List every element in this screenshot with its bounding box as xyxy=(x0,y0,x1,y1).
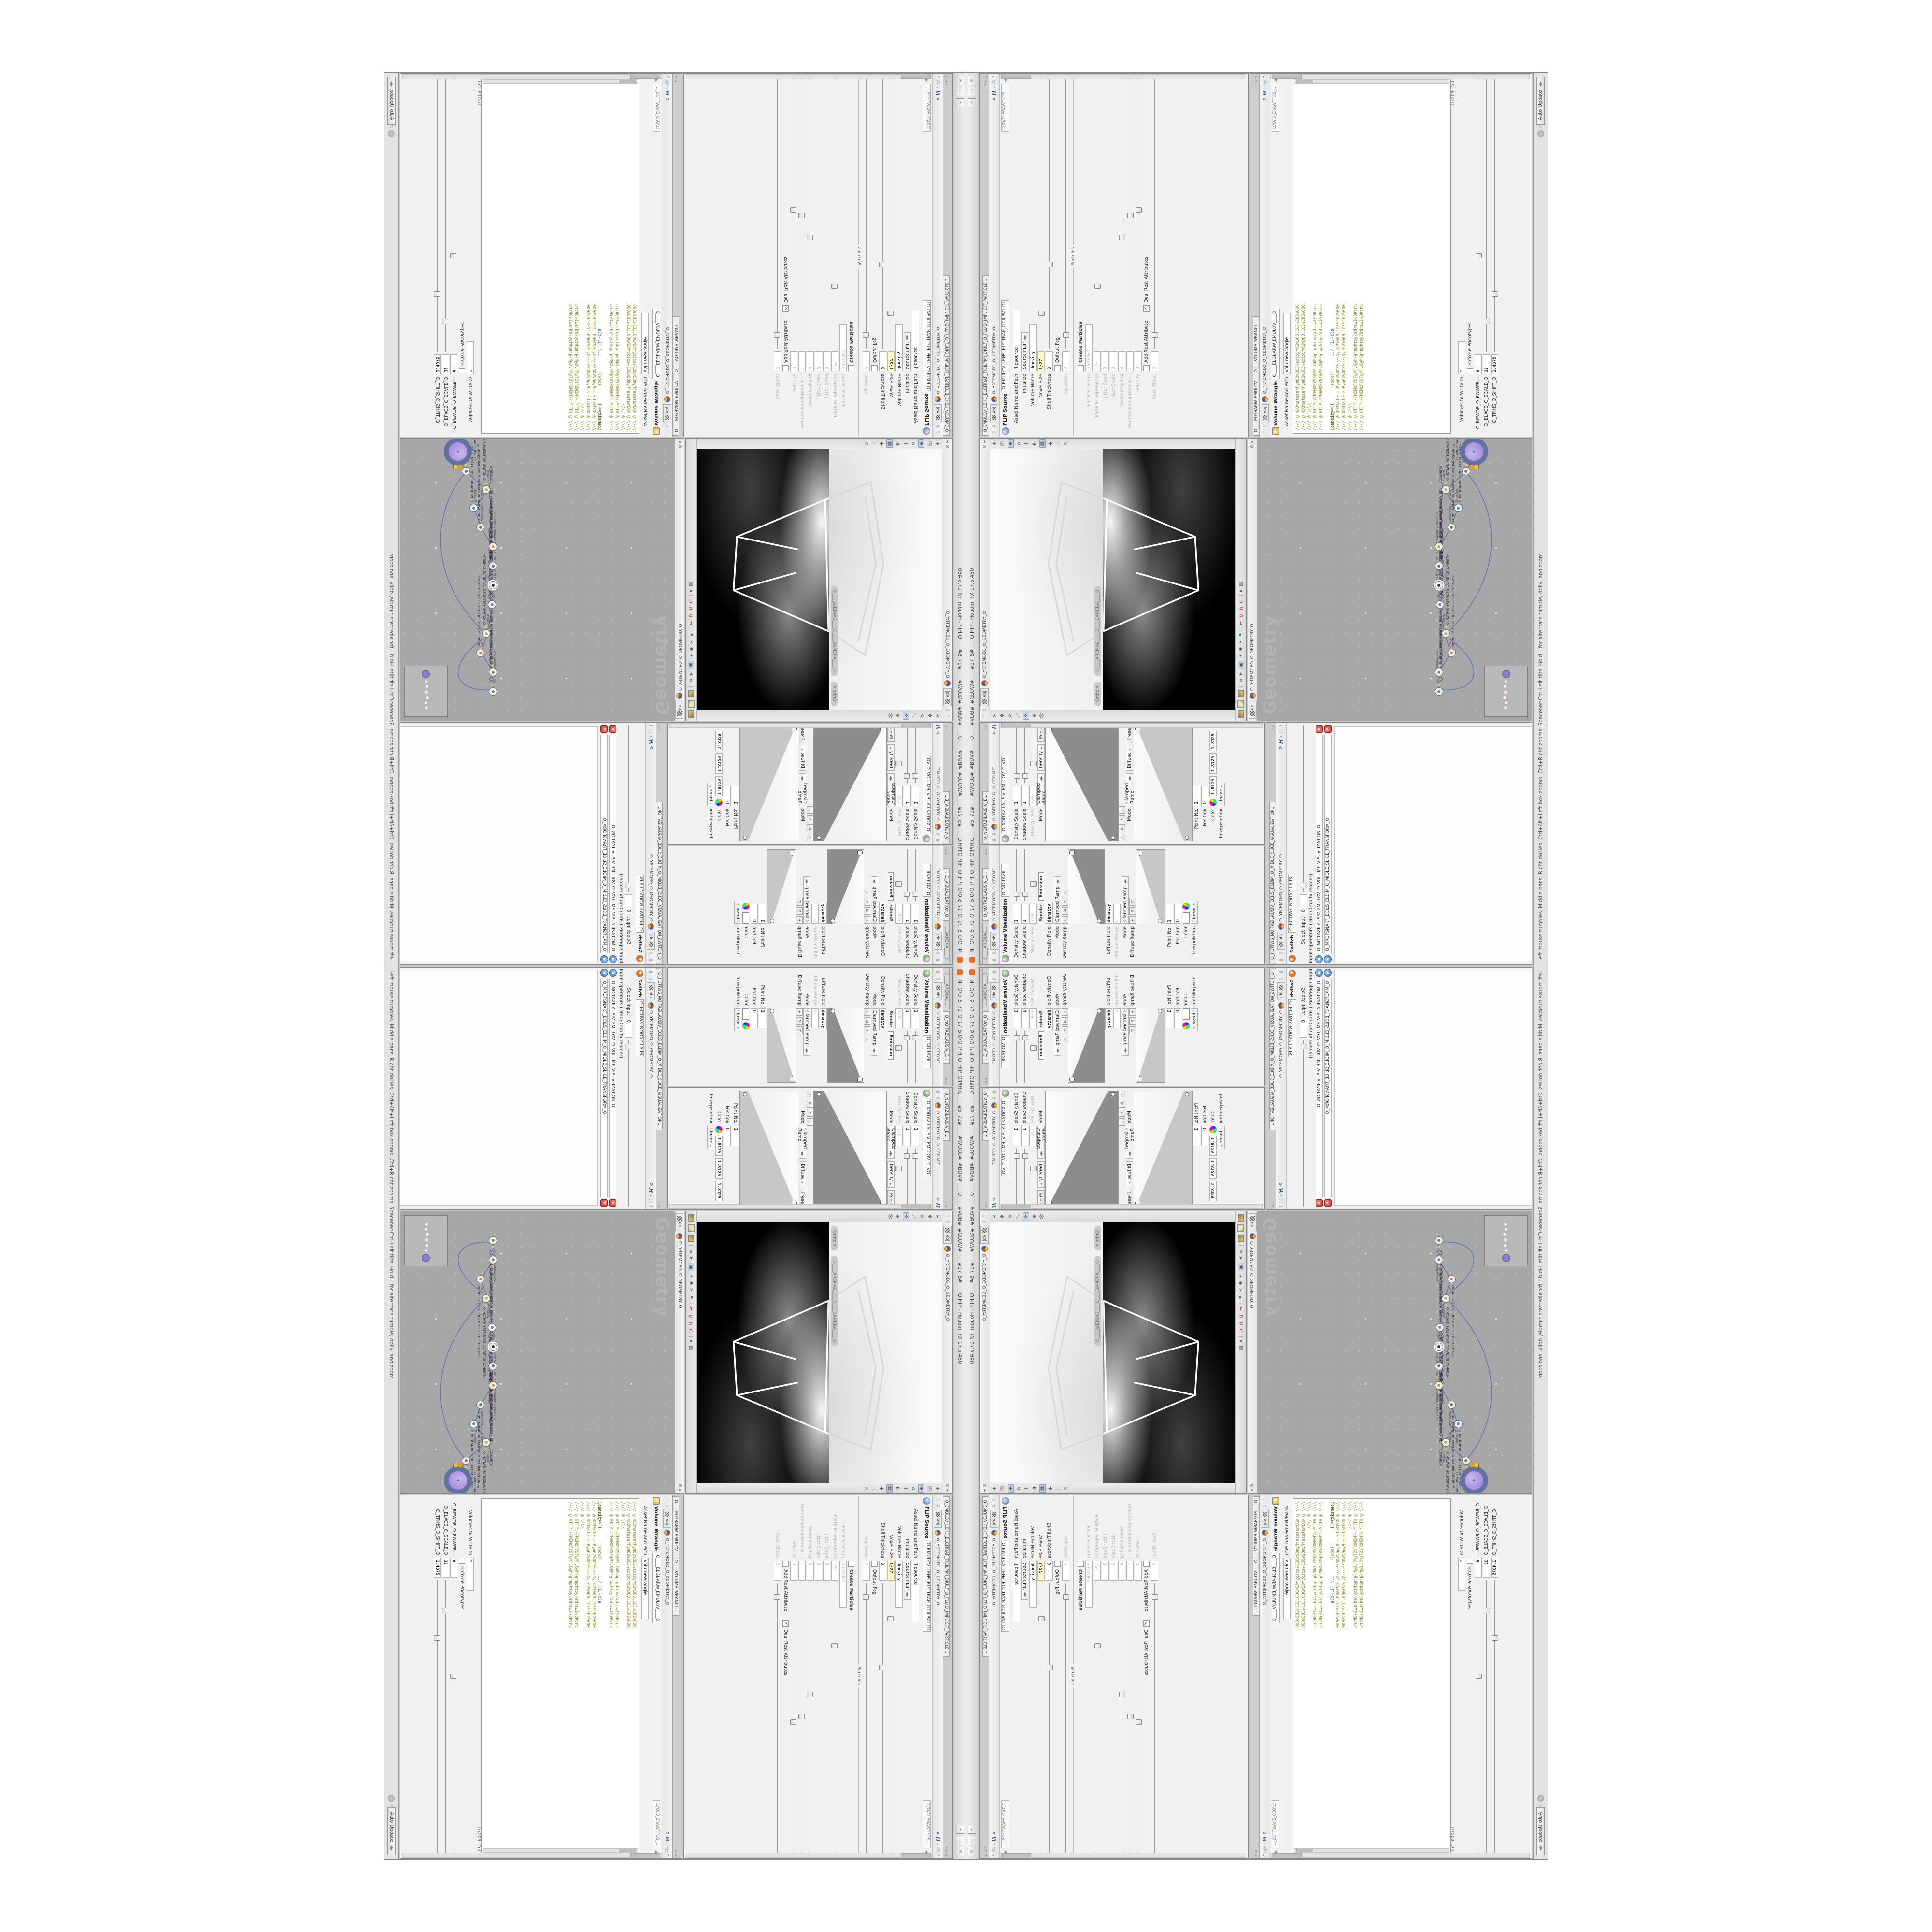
density-mode-menu[interactable]: Clamped Ramp◀▶ xyxy=(1054,876,1061,924)
ramp-handle[interactable] xyxy=(831,919,835,923)
edges-mode-icon[interactable]: ✶ xyxy=(689,1274,694,1278)
diffuse-field[interactable]: density xyxy=(1105,902,1112,924)
help-icon[interactable]: ? xyxy=(1279,724,1284,727)
diffuse-ramp-editor[interactable] xyxy=(739,725,798,841)
update-mode-icon[interactable]: ⟳ xyxy=(389,1804,394,1808)
breadcrumb[interactable]: O_YRTEMOEG_O_GEOMETRY_O xyxy=(665,1538,670,1605)
interpolation-menu[interactable]: Linear▾ xyxy=(1191,1008,1198,1031)
shading-mode-icon[interactable] xyxy=(1238,690,1244,697)
enforce-prototypes-checkbox[interactable] xyxy=(459,368,465,374)
tab-camera[interactable]: O____AREMAC____O... xyxy=(943,922,950,963)
shift-slider[interactable] xyxy=(434,1580,440,1855)
color-wheel-icon[interactable] xyxy=(715,1126,723,1133)
pane-corner-icons[interactable]: ▹ ▫ xyxy=(943,1078,949,1085)
magnifier-icon[interactable]: ⌕ xyxy=(665,86,670,89)
snap-prim-magnet-icon[interactable]: ⊂ xyxy=(1238,1329,1244,1333)
position-field[interactable]: 0 xyxy=(751,904,758,924)
network-canvas[interactable]: Geometry an_CubeSphereO_EREHPS_EBUC_O_CU… xyxy=(400,439,675,721)
asset-name-field[interactable]: flipsource xyxy=(1013,1561,1020,1622)
point-no-field[interactable]: 1 xyxy=(1166,1008,1173,1028)
snap-tool-icon[interactable]: ◈ xyxy=(895,1215,900,1219)
shell-thickness-field[interactable]: 3 xyxy=(1046,351,1053,371)
diffuse-range-field[interactable]: 0 xyxy=(811,1008,819,1028)
rest-offset-field[interactable]: 0 xyxy=(1151,1561,1158,1581)
gear-icon[interactable]: ⚙ xyxy=(936,1831,940,1835)
points-icon[interactable]: ∴ xyxy=(871,442,876,445)
magnifier-icon[interactable]: ⌕ xyxy=(1263,1843,1267,1846)
ramp-add-button[interactable]: + xyxy=(1062,916,1068,924)
fog-boost-field[interactable]: 0 xyxy=(1062,1561,1069,1581)
shading-mode-icon[interactable] xyxy=(1238,1214,1244,1222)
obj-context-chip[interactable]: obj xyxy=(934,404,942,422)
handles-tool-icon[interactable]: ✛ xyxy=(1023,711,1029,720)
interpolation-menu[interactable]: Linear▾ xyxy=(734,901,741,924)
oversampling-slider[interactable] xyxy=(807,1583,813,1855)
color-wheel-icon[interactable] xyxy=(715,799,723,806)
minimize-button[interactable]: – xyxy=(956,98,964,107)
scale-slider[interactable] xyxy=(442,1580,449,1855)
ortho-pill[interactable]: Ortho ▾ xyxy=(831,682,838,706)
tab-volume-visualization[interactable]: O_NOITAZILAUSIV_E... xyxy=(982,1089,989,1141)
remove-operator-icon[interactable]: ✕ xyxy=(1316,1199,1323,1207)
asset-name-field[interactable]: flipsource xyxy=(912,1561,919,1622)
snap-point-magnet-icon[interactable]: ∪ xyxy=(1238,1314,1244,1319)
normals-icon[interactable]: ⊼ xyxy=(863,442,868,445)
ramp-handle[interactable] xyxy=(817,1092,821,1096)
ramp-handle[interactable] xyxy=(1158,1009,1162,1013)
diffuse-ramp-editor[interactable] xyxy=(767,1008,796,1083)
help-icon[interactable]: ? xyxy=(665,1854,670,1856)
pane-scrollbar[interactable] xyxy=(1270,74,1530,79)
breadcrumb[interactable]: O_YRTEMOEG_O_GEOMETRY_O xyxy=(982,611,987,678)
info-icon[interactable]: ⓘ xyxy=(664,1847,670,1852)
ramp-handle[interactable] xyxy=(1111,836,1115,840)
pane-tabbar[interactable]: O_HCTIWS_NOITAZILAUSIV_ECILS_ELDIM_O_MID… xyxy=(656,968,666,1209)
ramp-flip-button[interactable]: ▽ xyxy=(796,1026,803,1034)
output-fog-checkbox[interactable] xyxy=(871,365,878,371)
nav-down-icon[interactable]: ⇩ xyxy=(649,952,653,956)
color-swatch[interactable] xyxy=(1183,1008,1190,1020)
snap-point-magnet-icon[interactable]: ∪ xyxy=(688,1314,695,1319)
gear-icon[interactable]: ⚙ xyxy=(992,731,997,735)
info-icon[interactable]: ⓘ xyxy=(648,1199,654,1203)
help-icon[interactable]: ? xyxy=(1263,76,1267,78)
reorder-icon[interactable]: ◀ xyxy=(1324,955,1332,963)
obj-context-chip[interactable]: obj xyxy=(980,1226,989,1244)
camera-view-icon[interactable]: ◉ xyxy=(1008,440,1014,448)
density-mode-menu[interactable]: Clamped Ramp◀▶ xyxy=(887,1126,895,1159)
camera-view-icon[interactable]: ◉ xyxy=(1008,1484,1014,1493)
diffuse-mode-menu[interactable]: Clamped Ramp◀▶ xyxy=(1126,773,1133,806)
input-operator-row[interactable]: ◀ O_MROFSNART_ECILS_ELDIM_O_MIDLE_SLICE_… xyxy=(600,969,609,1207)
density-scale-field[interactable]: 1 xyxy=(912,786,919,806)
select-input-field[interactable]: 0 xyxy=(625,894,632,914)
particle-separation-slider[interactable] xyxy=(832,1583,838,1855)
breadcrumb[interactable]: O_YRTEMOEG_O_GEOMETRY_O xyxy=(1279,854,1284,922)
shadow-scale-field[interactable]: 1 xyxy=(904,786,911,806)
info-icon[interactable]: ⓘ xyxy=(1278,1199,1284,1203)
pane-tabbar[interactable]: O____ELGNARW_EMULOV____O____VOLUME_WRANG… xyxy=(672,1495,682,1858)
shading-mode-icon[interactable] xyxy=(688,1214,694,1222)
close-button[interactable]: ✕ xyxy=(968,76,976,85)
nav-down-icon[interactable]: ⇩ xyxy=(936,832,940,836)
move-tool-icon[interactable]: ✥ xyxy=(927,1214,932,1218)
viewport-canvas[interactable]: Ortho ▾ O____AREMAC____O____CAMERA____O xyxy=(990,1222,1235,1483)
obj-context-chip[interactable]: obj xyxy=(1277,982,1285,1000)
pane-menu-icon[interactable]: ▸ xyxy=(982,1489,987,1492)
ramp-delete-button[interactable]: ✕ xyxy=(1062,898,1068,906)
ramp-grid-button[interactable]: ⊞ xyxy=(807,1100,813,1108)
interpolation-menu[interactable]: Linear▾ xyxy=(1218,783,1225,806)
node-name-field[interactable]: O_EMULOV_LEHS_ELCITRAP_TICILPMI_DI xyxy=(923,300,931,392)
power-field[interactable]: 6 xyxy=(450,1558,457,1578)
tab-switch[interactable]: O_HCTIWS_NOITAZILAUSIV_ECILS_ELDIM_O_MID… xyxy=(1269,969,1276,1130)
select-input-field[interactable]: 0 xyxy=(1300,1018,1307,1038)
node-name-field[interactable]: O_HCTIWS_NOITAZILAUS xyxy=(1288,999,1296,1057)
snap-prim-magnet-icon[interactable]: ⊂ xyxy=(1238,599,1244,603)
frame-view-icon[interactable]: ⌂ xyxy=(910,1487,916,1490)
rest-offset-slider[interactable] xyxy=(1151,1583,1158,1855)
vector-icon[interactable]: ⚑ xyxy=(689,633,694,637)
ramp-delete-button[interactable]: ✕ xyxy=(807,815,813,823)
minimize-button[interactable]: – xyxy=(968,98,976,107)
nav-down-icon[interactable]: ⇩ xyxy=(936,1096,940,1100)
diffuse-field[interactable]: density xyxy=(820,902,827,924)
tab-volume-visualization[interactable]: O_NOITAZILAUSIV_E... xyxy=(982,1011,989,1064)
ramp-add-button[interactable]: + xyxy=(807,1091,813,1098)
ramp-handle[interactable] xyxy=(770,1009,774,1013)
asset-name-field[interactable]: volumewrangle xyxy=(641,313,649,374)
node-name-field[interactable]: O____ELGNARW_EMULOV____O xyxy=(1272,1553,1280,1623)
wire-icon[interactable]: ✚ xyxy=(1048,441,1053,445)
obj-context-chip[interactable]: obj xyxy=(934,1510,942,1528)
ramp-add-button[interactable]: + xyxy=(807,834,813,841)
shade-icon[interactable]: ◐ xyxy=(895,441,900,446)
oversampling-bandwidth-slider[interactable] xyxy=(1127,77,1133,349)
output-fog-checkbox[interactable] xyxy=(1054,1561,1061,1567)
fog-boost-slider[interactable] xyxy=(1063,77,1069,349)
nav-up-icon[interactable]: ⇧ xyxy=(982,714,987,719)
volumes-to-write-field[interactable]: * xyxy=(467,1558,474,1591)
position-field[interactable]: 0 xyxy=(724,786,731,806)
ramp-flip-button[interactable]: △ xyxy=(807,806,813,814)
add-rest-checkbox[interactable] xyxy=(782,365,789,371)
vector-icon[interactable]: ⚑ xyxy=(689,1295,694,1299)
velocity-field[interactable]: 0 xyxy=(1135,1561,1142,1581)
density-scale-slider[interactable] xyxy=(1013,1149,1020,1207)
ramp-add-button[interactable]: + xyxy=(1119,1091,1125,1098)
node-name-field[interactable]: O_NOITAZIL... xyxy=(1001,1035,1009,1068)
update-mode-icon[interactable]: ⟳ xyxy=(1538,125,1543,128)
hda-path-field[interactable]: C:/O/O_ERAWTFOS_... xyxy=(1272,84,1279,131)
ramp-grid-button[interactable]: ⊞ xyxy=(864,907,871,915)
pane-corner-icons[interactable]: ▹ ▫ xyxy=(673,75,678,82)
asset-name-field[interactable]: flipsource xyxy=(1013,310,1020,371)
ramp-handle[interactable] xyxy=(743,1092,747,1096)
pane-scrollbar[interactable] xyxy=(669,723,932,728)
pane-corner-icons[interactable]: ▹ ▫ xyxy=(943,724,949,730)
velocity-slider[interactable] xyxy=(791,1583,797,1855)
dual-rest-checkbox[interactable]: ✓ xyxy=(782,305,789,312)
nav-up-icon[interactable]: ⇧ xyxy=(665,1497,670,1502)
obj-context-chip[interactable]: obj xyxy=(934,982,942,1000)
nav-up-icon[interactable]: ⇧ xyxy=(936,838,940,842)
snap-grid-magnet-icon[interactable]: ⌐ xyxy=(1238,1307,1244,1311)
initialize-menu[interactable]: Source FLIP◀▶ xyxy=(904,1561,911,1600)
ramp-add-button[interactable]: + xyxy=(796,916,803,924)
obj-context-chip[interactable]: obj xyxy=(990,932,998,950)
ramp-flip-button[interactable]: △ xyxy=(864,1036,871,1043)
point-no-field[interactable]: 1 xyxy=(1193,1126,1200,1146)
vex-snippet-editor[interactable]: //// @ 0D3%steserPym62%0D3%eziSym62%000.… xyxy=(481,1498,639,1854)
color-wheel-icon[interactable] xyxy=(1209,1126,1217,1133)
density-scale-field[interactable]: 1 xyxy=(1013,1008,1020,1028)
obj-context-chip[interactable]: obj xyxy=(663,1510,671,1528)
interpolation-menu[interactable]: Linear▾ xyxy=(1191,901,1198,924)
pane-menu-icon[interactable]: ▸ xyxy=(1250,1489,1255,1492)
reorder-icon[interactable]: ◀ xyxy=(1315,969,1323,977)
ramp-add-button[interactable]: + xyxy=(864,916,871,924)
ramp-handle[interactable] xyxy=(743,836,747,840)
persp-view-icon[interactable]: ◰ xyxy=(927,1486,932,1491)
rotate-tool-icon[interactable]: ⟳ xyxy=(919,713,924,717)
nav-down-icon[interactable]: ⇩ xyxy=(992,832,997,836)
pane-tabbar[interactable]: O_NOITAZILAUSIV_E... ▹ ▫ xyxy=(980,1088,989,1209)
voxel-size-field[interactable]: 1/27 xyxy=(1037,1561,1045,1581)
node-name-field[interactable]: O_NOITAZIL... xyxy=(923,1035,931,1068)
color-wheel-icon[interactable] xyxy=(742,1022,750,1029)
shift-field[interactable]: 1.4375 xyxy=(434,354,441,374)
pane-corner-icons[interactable]: ▹ ▫ xyxy=(983,724,989,730)
magnifier-icon[interactable]: ⌕ xyxy=(1263,86,1267,89)
shadow-scale-slider[interactable] xyxy=(1022,1031,1028,1083)
diffuse-field[interactable]: density xyxy=(1105,1008,1112,1030)
oversampling-slider[interactable] xyxy=(1119,77,1125,349)
jitter-scale-field[interactable]: 0 xyxy=(815,1561,822,1581)
point-no-field[interactable]: 1 xyxy=(732,786,739,806)
volume-icon[interactable]: ▦ xyxy=(1039,1484,1046,1493)
power-slider[interactable] xyxy=(451,77,457,352)
select-input-field[interactable]: 0 xyxy=(625,1018,632,1038)
max-vis-res-slider[interactable] xyxy=(1030,1149,1036,1207)
shadow-scale-field[interactable]: 1 xyxy=(1021,1008,1028,1028)
enforce-prototypes-checkbox[interactable] xyxy=(1467,1558,1473,1564)
output-fog-checkbox[interactable] xyxy=(871,1561,878,1567)
pane-tabbar[interactable]: O_HCTIWS_NOITAZILAUSIV_ECILS_ELDIM_O_MID… xyxy=(1266,723,1276,964)
position-field[interactable]: 0 xyxy=(751,1008,758,1028)
smoke-tab[interactable]: Smoke xyxy=(889,902,894,924)
scissors-icon[interactable]: ✂ xyxy=(1238,640,1244,644)
breadcrumb[interactable]: O_YRTEMOEG_O_GEOMETRY_O xyxy=(936,869,940,922)
ramp-delete-button[interactable]: ✕ xyxy=(1119,1109,1125,1117)
gear-icon[interactable]: ⚙ xyxy=(992,1197,997,1201)
gear-icon[interactable]: ⚙ xyxy=(649,746,653,750)
tab-flip-source[interactable]: O_EMULOV_LEHS_ELCITRAP_TICILPMI_DIULF_O_… xyxy=(982,1496,989,1657)
rotate-tool-icon[interactable]: ⟳ xyxy=(919,1214,924,1218)
node-result-transform-selected[interactable]: ✦ xyxy=(1460,1466,1488,1493)
diffuse-mode-menu[interactable]: Clamped Ramp◀▶ xyxy=(1122,876,1129,924)
shell-thickness-field[interactable]: 3 xyxy=(879,1561,886,1581)
maximize-button[interactable]: □ xyxy=(956,1836,964,1845)
emission-tab[interactable]: Emission xyxy=(1038,1031,1044,1060)
nav-down-icon[interactable]: ⇩ xyxy=(992,952,997,956)
view-layout-icon[interactable]: ❖ xyxy=(935,441,940,446)
normals-icon[interactable]: ⊼ xyxy=(1064,442,1069,445)
color-wheel-icon[interactable] xyxy=(1182,1022,1190,1029)
scale-field[interactable]: 32 xyxy=(1483,1558,1490,1578)
scissors-icon[interactable]: ✂ xyxy=(689,640,694,644)
gear-icon[interactable]: ⚙ xyxy=(1263,1831,1267,1835)
velocity-slider[interactable] xyxy=(791,77,797,349)
prims-mode-icon[interactable]: ✹ xyxy=(1238,1281,1244,1285)
density-scale-field[interactable]: 1 xyxy=(1013,786,1020,806)
pane-menu-icon[interactable]: ▸ xyxy=(945,440,950,443)
obj-context-chip[interactable]: obj xyxy=(1261,1510,1269,1528)
shade-icon[interactable]: ◐ xyxy=(1032,1486,1037,1491)
voxel-size-field[interactable]: 1/27 xyxy=(887,1561,895,1581)
vex-snippet-editor[interactable]: //// @ 0D3%steserPym62%0D3%eziSym62%000.… xyxy=(1293,1498,1451,1854)
breadcrumb[interactable]: O_YRTEMOEG_O_GEOMETRY_O xyxy=(936,327,940,394)
rest-offset-slider[interactable] xyxy=(774,77,781,349)
breadcrumb[interactable]: O_YRTEMOEG_O_GEOMETRY_O xyxy=(992,869,997,922)
reorder-icon[interactable]: ◀ xyxy=(1324,969,1332,977)
nav-down-icon[interactable]: ⇩ xyxy=(982,708,987,712)
select-tool-icon[interactable]: ➤ xyxy=(935,713,940,717)
points-mode-icon[interactable]: ▣ xyxy=(688,1263,695,1271)
position-field[interactable]: 0 xyxy=(1174,1008,1181,1028)
node-name-field[interactable]: O_HCTIWS_NOITAZILAUS xyxy=(636,999,644,1057)
tab-volume-visualization[interactable]: O_NOITAZILAUSIV_E... xyxy=(943,791,950,843)
ramp-delete-button[interactable]: ✕ xyxy=(1062,1026,1068,1034)
objects-mode-icon[interactable]: ➤ xyxy=(689,1256,694,1260)
obj-context-chip[interactable]: obj xyxy=(934,932,942,950)
obj-context-chip[interactable]: obj xyxy=(980,688,989,706)
max-vis-res-slider[interactable] xyxy=(1030,1031,1036,1083)
ramp-add-button[interactable]: + xyxy=(1119,834,1125,841)
diffuse-range-field[interactable]: 0 xyxy=(1113,1008,1121,1028)
node-name-field[interactable]: O_NOITAZILAUSIV_EMULOV_O_VO xyxy=(1001,1099,1009,1176)
ramp-delete-button[interactable]: ✕ xyxy=(864,898,871,906)
position-field[interactable]: 0 xyxy=(724,1126,731,1146)
pane-tabbar[interactable]: O____ELGNARW_EMULOV____O____VOLUME_WRANG… xyxy=(1250,74,1260,437)
network-minimap[interactable] xyxy=(1484,666,1528,717)
reorder-icon[interactable]: ◀ xyxy=(609,955,617,963)
breadcrumb[interactable]: O_YRTEMOEG_O_GEOMETRY_O xyxy=(936,767,940,821)
fog-boost-field[interactable]: 0 xyxy=(1062,351,1069,371)
power-field[interactable]: 6 xyxy=(1475,354,1482,374)
pane-menu-icon[interactable]: ▸ xyxy=(677,440,682,443)
density-scale-slider[interactable] xyxy=(1013,849,1020,901)
obj-context-chip[interactable]: obj xyxy=(647,982,655,1000)
max-vis-res-field[interactable]: 128 xyxy=(1029,1008,1037,1028)
oversampling-bandwidth-field[interactable]: 1 xyxy=(798,351,806,371)
frame-view-icon[interactable]: ⌂ xyxy=(1016,1487,1022,1490)
ramp-flip-button[interactable]: △ xyxy=(1119,806,1125,814)
initialize-menu[interactable]: Source FLIP◀▶ xyxy=(1021,332,1028,371)
network-path[interactable]: O_YRTEMOEG_O_GEOMETRY_O xyxy=(1250,624,1255,691)
node-name-field[interactable]: O____ELGNARW_EMULOV____O xyxy=(653,1553,661,1623)
diffuse-field[interactable]: density xyxy=(820,1008,827,1030)
window-titlebar[interactable]: INI_O/O_5_71_O_17_5.O/O_PIH_O_HIP_O/PIH.… xyxy=(954,73,966,966)
objects-mode-icon[interactable]: ➤ xyxy=(689,672,694,676)
pane-scrollbar[interactable] xyxy=(402,1853,662,1858)
points-mode-icon[interactable]: ▣ xyxy=(1238,661,1244,669)
nav-up-icon[interactable]: ⇧ xyxy=(992,838,997,842)
gear-icon[interactable]: ⚙ xyxy=(665,1831,670,1835)
jitter-seed-field[interactable]: 0 xyxy=(823,1561,830,1581)
asset-name-field[interactable]: flipsource xyxy=(912,310,919,371)
ramp-grid-button[interactable]: ⊞ xyxy=(1062,907,1068,915)
snap-edge-magnet-icon[interactable]: ∩ xyxy=(1238,1321,1244,1326)
vex-snippet-editor[interactable]: //// @ 0D3%steserPym62%0D3%eziSym62%000.… xyxy=(1293,78,1451,434)
hda-path-field[interactable]: C:/O/O_ERAWTFOS_... xyxy=(1001,84,1009,131)
shift-slider[interactable] xyxy=(1492,1580,1498,1855)
close-button[interactable]: ✕ xyxy=(968,1847,976,1856)
node-switch-visualization[interactable]: SwitchO_HCTIWS_NOITAZILAUSIV_ECILS_ELDIM… xyxy=(482,439,490,494)
oversampling-field[interactable]: 2 xyxy=(807,1561,814,1581)
velocity-slider[interactable] xyxy=(1135,77,1141,349)
pane-scrollbar[interactable] xyxy=(1000,1853,1246,1858)
nav-down-icon[interactable]: ⇩ xyxy=(649,976,653,980)
oversampling-bandwidth-field[interactable]: 1 xyxy=(798,1561,806,1581)
pane-tabbar[interactable]: O_EMULOV_LEHS_ELCITRAP_TICILPMI_DIULF_O_… xyxy=(980,1495,989,1858)
pane-tabbar[interactable]: O_HCTIWS_NOITAZILAUSIV_ECILS_ELDIM_O_MID… xyxy=(1266,968,1276,1209)
normals-icon[interactable]: ⊼ xyxy=(863,1487,868,1490)
pin-icon[interactable]: ⊙ xyxy=(982,1484,987,1488)
ramp-flip-button[interactable]: △ xyxy=(1062,1036,1068,1043)
node-name-field[interactable]: O____ELGNARW_EMULOV____O xyxy=(1272,309,1280,379)
gear-icon[interactable]: ⚙ xyxy=(992,97,997,101)
light-icon[interactable]: ☀ xyxy=(1024,1486,1029,1491)
gear-icon[interactable]: ⚙ xyxy=(992,1831,997,1835)
render-icon[interactable]: ▸ xyxy=(1238,1340,1244,1343)
pin-icon[interactable]: ⊙ xyxy=(677,1484,682,1488)
nav-up-icon[interactable]: ⇧ xyxy=(936,1090,940,1094)
breadcrumb[interactable]: O_YRTEMOEG_O_GEOMETRY_O xyxy=(992,1010,997,1063)
maximize-button[interactable]: □ xyxy=(968,87,976,96)
ramp-grid-button[interactable]: ⊞ xyxy=(1119,1100,1125,1108)
enforce-prototypes-checkbox[interactable] xyxy=(1467,368,1473,374)
obj-context-chip[interactable]: obj xyxy=(676,701,684,719)
remove-operator-icon[interactable]: ✕ xyxy=(1324,1199,1332,1207)
density-field[interactable]: density xyxy=(1046,902,1053,924)
nav-down-icon[interactable]: ⇩ xyxy=(936,424,940,428)
max-vis-res-slider[interactable] xyxy=(896,849,902,901)
density-ramp-editor[interactable] xyxy=(1068,1008,1105,1083)
nav-down-icon[interactable]: ⇩ xyxy=(1279,976,1284,980)
interpolation-menu[interactable]: Linear▾ xyxy=(707,1126,714,1149)
tab-volume-visualization[interactable]: O_NOITAZILAUSIV_E... xyxy=(943,868,950,921)
pane-tabbar[interactable]: O_EMULOV_LEHS_ELCITRAP_TICILPMI_DIULF_O_… xyxy=(943,74,952,437)
view-tool-icon[interactable]: 👁 xyxy=(887,1213,893,1220)
nav-down-icon[interactable]: ⇩ xyxy=(936,952,940,956)
pane-scrollbar[interactable] xyxy=(686,74,932,79)
hda-path-field[interactable]: C:/O/O_ERAWTFOS_... xyxy=(1001,1800,1009,1848)
pane-tabbar[interactable]: O____AREMAC____O... O_NOITAZILAUSIV_E...… xyxy=(943,968,952,1086)
ramp-handle[interactable] xyxy=(1111,1092,1115,1096)
nav-down-icon[interactable]: ⇩ xyxy=(992,1096,997,1100)
smoke-tab[interactable]: Smoke xyxy=(1039,902,1044,924)
breadcrumb[interactable]: O_YRTEMOEG_O_GEOMETRY_O xyxy=(936,1010,940,1063)
diffuse-mode-menu[interactable]: Clamped Ramp◀▶ xyxy=(1122,1008,1129,1056)
gear-icon[interactable]: ⚙ xyxy=(1279,1182,1284,1186)
fog-boost-slider[interactable] xyxy=(863,77,869,349)
color-g-field[interactable]: 1.8125 xyxy=(1209,1158,1217,1179)
point-no-field[interactable]: 1 xyxy=(732,1126,739,1146)
breadcrumb[interactable]: O_YRTEMOEG_O_GEOMETRY_O xyxy=(1279,1010,1284,1078)
oversampling-field[interactable]: 2 xyxy=(1118,351,1125,371)
max-vis-res-slider[interactable] xyxy=(896,1149,902,1207)
